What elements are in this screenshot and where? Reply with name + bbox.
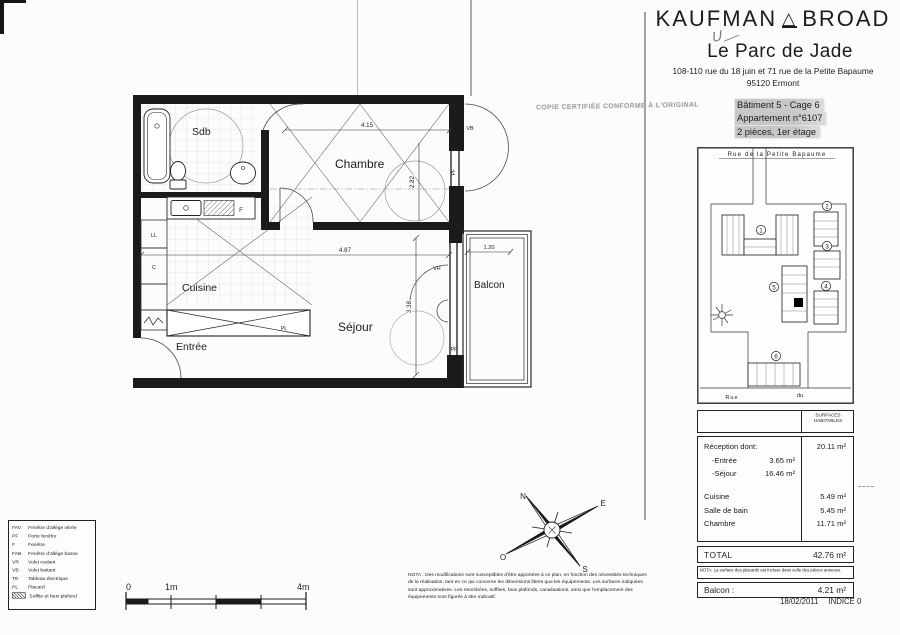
dim-chambre-width: 4.15	[361, 122, 374, 129]
plan-nota-text: NOTA : Des modifications sont susceptibl…	[408, 571, 649, 601]
table-nota: NOTA: La surface des placards est inclus…	[697, 566, 854, 579]
dim-chambre-height: 2.82	[409, 175, 416, 188]
table-row: -Séjour 16.46 m²	[698, 469, 853, 481]
row-label: Réception dont:	[704, 442, 757, 451]
row-value: 11.71 m²	[817, 519, 846, 528]
surface-table-body: Réception dont: 20.11 m² -Entrée 3.65 m²…	[697, 436, 854, 542]
dim-sejour-width: 4.87	[339, 247, 352, 254]
room-label-entree: Entrée	[176, 341, 207, 353]
triangle-logo-icon: △	[782, 11, 797, 28]
table-row: Réception dont: 20.11 m²	[698, 442, 853, 454]
fold-line	[470, 0, 472, 96]
legend-abbr: PL	[12, 584, 28, 590]
washbasin	[231, 162, 256, 184]
closet-placard	[167, 310, 310, 336]
plan-legend: FAVFenêtre d'allège vitrée PFPorte fenêt…	[8, 520, 96, 610]
building-number-4: 4	[824, 284, 828, 291]
table-nota-text: NOTA: La surface des placards est inclus…	[698, 567, 854, 573]
tag-pl: PL	[281, 326, 287, 332]
scan-corner-mark	[0, 0, 26, 3]
electric-symbol	[144, 317, 163, 325]
legend-label: Fenêtre	[28, 542, 45, 548]
street-label-rue: Rue	[725, 395, 738, 401]
surface-table: SURFACES HABITABLES Réception dont: 20.1…	[697, 410, 854, 598]
bathtub	[144, 109, 170, 183]
building-number-6: 6	[774, 354, 778, 361]
room-label-sdb: Sdb	[192, 126, 211, 138]
legend-row: PLPlacard	[12, 583, 96, 591]
legend-abbr: VB	[12, 567, 28, 573]
compass-o: O	[500, 553, 506, 562]
legend-label: Soffite et faux plafond	[29, 593, 77, 599]
balcon-value: 4.21 m²	[818, 585, 853, 595]
tag-c: C	[152, 265, 156, 271]
legend-row: VRVolet roulant	[12, 557, 96, 565]
scale-label-4m: 4m	[297, 582, 310, 592]
room-label-sejour: Séjour	[338, 320, 373, 334]
tag-pf-sejour: PF	[451, 347, 458, 353]
tag-pf-chambre: PF	[451, 169, 457, 176]
legend-abbr: FAV	[12, 525, 28, 531]
project-address-line1: 108-110 rue du 18 juin et 71 rue de la P…	[648, 66, 898, 76]
legend-abbr: PF	[12, 533, 28, 539]
balcon-label: Balcon :	[698, 585, 734, 595]
document-date: 18/02/2011	[780, 597, 818, 606]
dimension-labels: 4.15 4.87 3.38 2.82 1.20	[339, 122, 494, 313]
project-title: Le Parc de Jade	[690, 41, 870, 63]
tag-vr: VR	[433, 266, 441, 272]
legend-label: Volet roulant	[28, 559, 55, 565]
total-label: TOTAL	[698, 550, 733, 560]
apartment-location-marker	[794, 298, 803, 307]
brand-broad: BROAD	[802, 6, 890, 31]
legend-abbr: TE	[12, 576, 28, 582]
row-value: 20.11 m²	[817, 442, 846, 451]
legend-abbr: FAB	[12, 550, 28, 556]
document-footer: 18/02/2011INDICE 0	[780, 597, 871, 606]
site-plan: Rue de la Petite Bapaume	[697, 147, 854, 404]
legend-row: VBVolet battant	[12, 566, 96, 574]
total-row: TOTAL 42.76 m²	[697, 546, 854, 563]
certified-copy-stamp: COPIE CERTIFIÉE CONFORME À L'ORIGINAL	[536, 104, 716, 115]
legend-row: FABFenêtre d'allège basse	[12, 549, 96, 557]
legend-row: FFenêtre	[12, 540, 96, 548]
compass-e: E	[600, 499, 605, 508]
legend-abbr: F	[12, 542, 28, 548]
table-row: Chambre 11.71 m²	[698, 519, 853, 531]
row-label: Cuisine	[704, 492, 729, 501]
fold-line	[357, 0, 358, 96]
toilet	[170, 162, 186, 190]
legend-label: Fenêtre d'allège basse	[28, 550, 78, 556]
tag-f: F	[239, 208, 243, 214]
legend-label: Tableau électrique	[28, 576, 68, 582]
legend-row: PFPorte fenêtre	[12, 532, 96, 540]
plan-sheet: Sdb Chambre Cuisine Entrée Séjour Balcon…	[0, 0, 900, 635]
dim-balcon-width: 1.20	[484, 245, 495, 251]
row-label: Chambre	[704, 519, 735, 528]
compass-rose: N E O S	[498, 488, 610, 576]
legend-row: FAVFenêtre d'allège vitrée	[12, 523, 96, 531]
surfaces-habitables-header: SURFACES HABITABLES	[801, 412, 855, 423]
legend-label: Fenêtre d'allège vitrée	[28, 525, 77, 531]
row-sub-value: 3.65 m²	[769, 456, 795, 465]
unit-building: Bâtiment 5 - Cage 6	[735, 99, 824, 112]
stamp-text: COPIE CERTIFIÉE CONFORME À L'ORIGINAL	[536, 101, 713, 112]
project-address-line2: 95120 Ermont	[648, 78, 898, 88]
building-number-1: 1	[759, 228, 763, 235]
row-label: -Entrée	[712, 456, 737, 465]
legend-row: TETableau électrique	[12, 574, 96, 582]
scale-bar: 0 1m 4m	[125, 580, 320, 614]
building-number-3: 3	[825, 244, 829, 251]
balcon-row: Balcon : 4.21 m²	[697, 582, 854, 598]
table-row: -Entrée 3.65 m²	[698, 456, 853, 468]
scale-label-0: 0	[126, 582, 131, 592]
legend-label: Porte fenêtre	[28, 533, 56, 539]
building-number-2: 2	[825, 204, 829, 211]
soffit-hatch-swatch	[12, 593, 26, 599]
scan-corner-mark	[0, 0, 4, 34]
row-value: 5.45 m²	[820, 506, 846, 515]
row-value: 5.49 m²	[820, 492, 846, 501]
building-number-5: 5	[772, 285, 776, 292]
panel-divider-line	[644, 12, 646, 520]
unit-info: Bâtiment 5 - Cage 6 Appartement n°6107 2…	[735, 99, 885, 139]
unit-apartment: Appartement n°6107	[735, 112, 826, 125]
row-label: Salle de bain	[704, 506, 748, 515]
balcony-outline	[463, 231, 531, 387]
floor-plan-drawing: Sdb Chambre Cuisine Entrée Séjour Balcon…	[120, 85, 540, 400]
room-label-chambre: Chambre	[335, 157, 385, 171]
row-sub-value: 16.46 m²	[765, 469, 795, 478]
dim-sejour-height: 3.38	[406, 300, 413, 313]
total-value: 42.76 m²	[813, 550, 853, 560]
surface-table-header: SURFACES HABITABLES	[697, 410, 854, 433]
scan-speck	[858, 486, 874, 488]
unit-type: 2 pièces, 1er étage	[735, 126, 820, 139]
room-label-cuisine: Cuisine	[182, 282, 217, 294]
legend-abbr: VR	[12, 559, 28, 565]
brand-header: KAUFMAN△BROAD	[648, 6, 898, 32]
legend-label: Placard	[28, 584, 45, 590]
compass-n: N	[520, 492, 526, 501]
scale-label-1m: 1m	[165, 582, 178, 592]
legend-label: Volet battant	[28, 567, 55, 573]
document-indice: INDICE 0	[828, 597, 861, 606]
tag-vb: VB	[466, 126, 474, 132]
table-row: Salle de bain 5.45 m²	[698, 506, 853, 518]
table-row: Cuisine 5.49 m²	[698, 492, 853, 504]
row-label: -Séjour	[712, 469, 736, 478]
room-label-balcon: Balcon	[474, 280, 505, 291]
legend-row: Soffite et faux plafond	[12, 591, 96, 599]
street-label-du: du	[797, 393, 803, 399]
plan-nota: NOTA : Des modifications sont susceptibl…	[408, 571, 650, 619]
street-label-top: Rue de la Petite Bapaume	[728, 152, 827, 158]
tag-ll: LL	[151, 233, 157, 239]
